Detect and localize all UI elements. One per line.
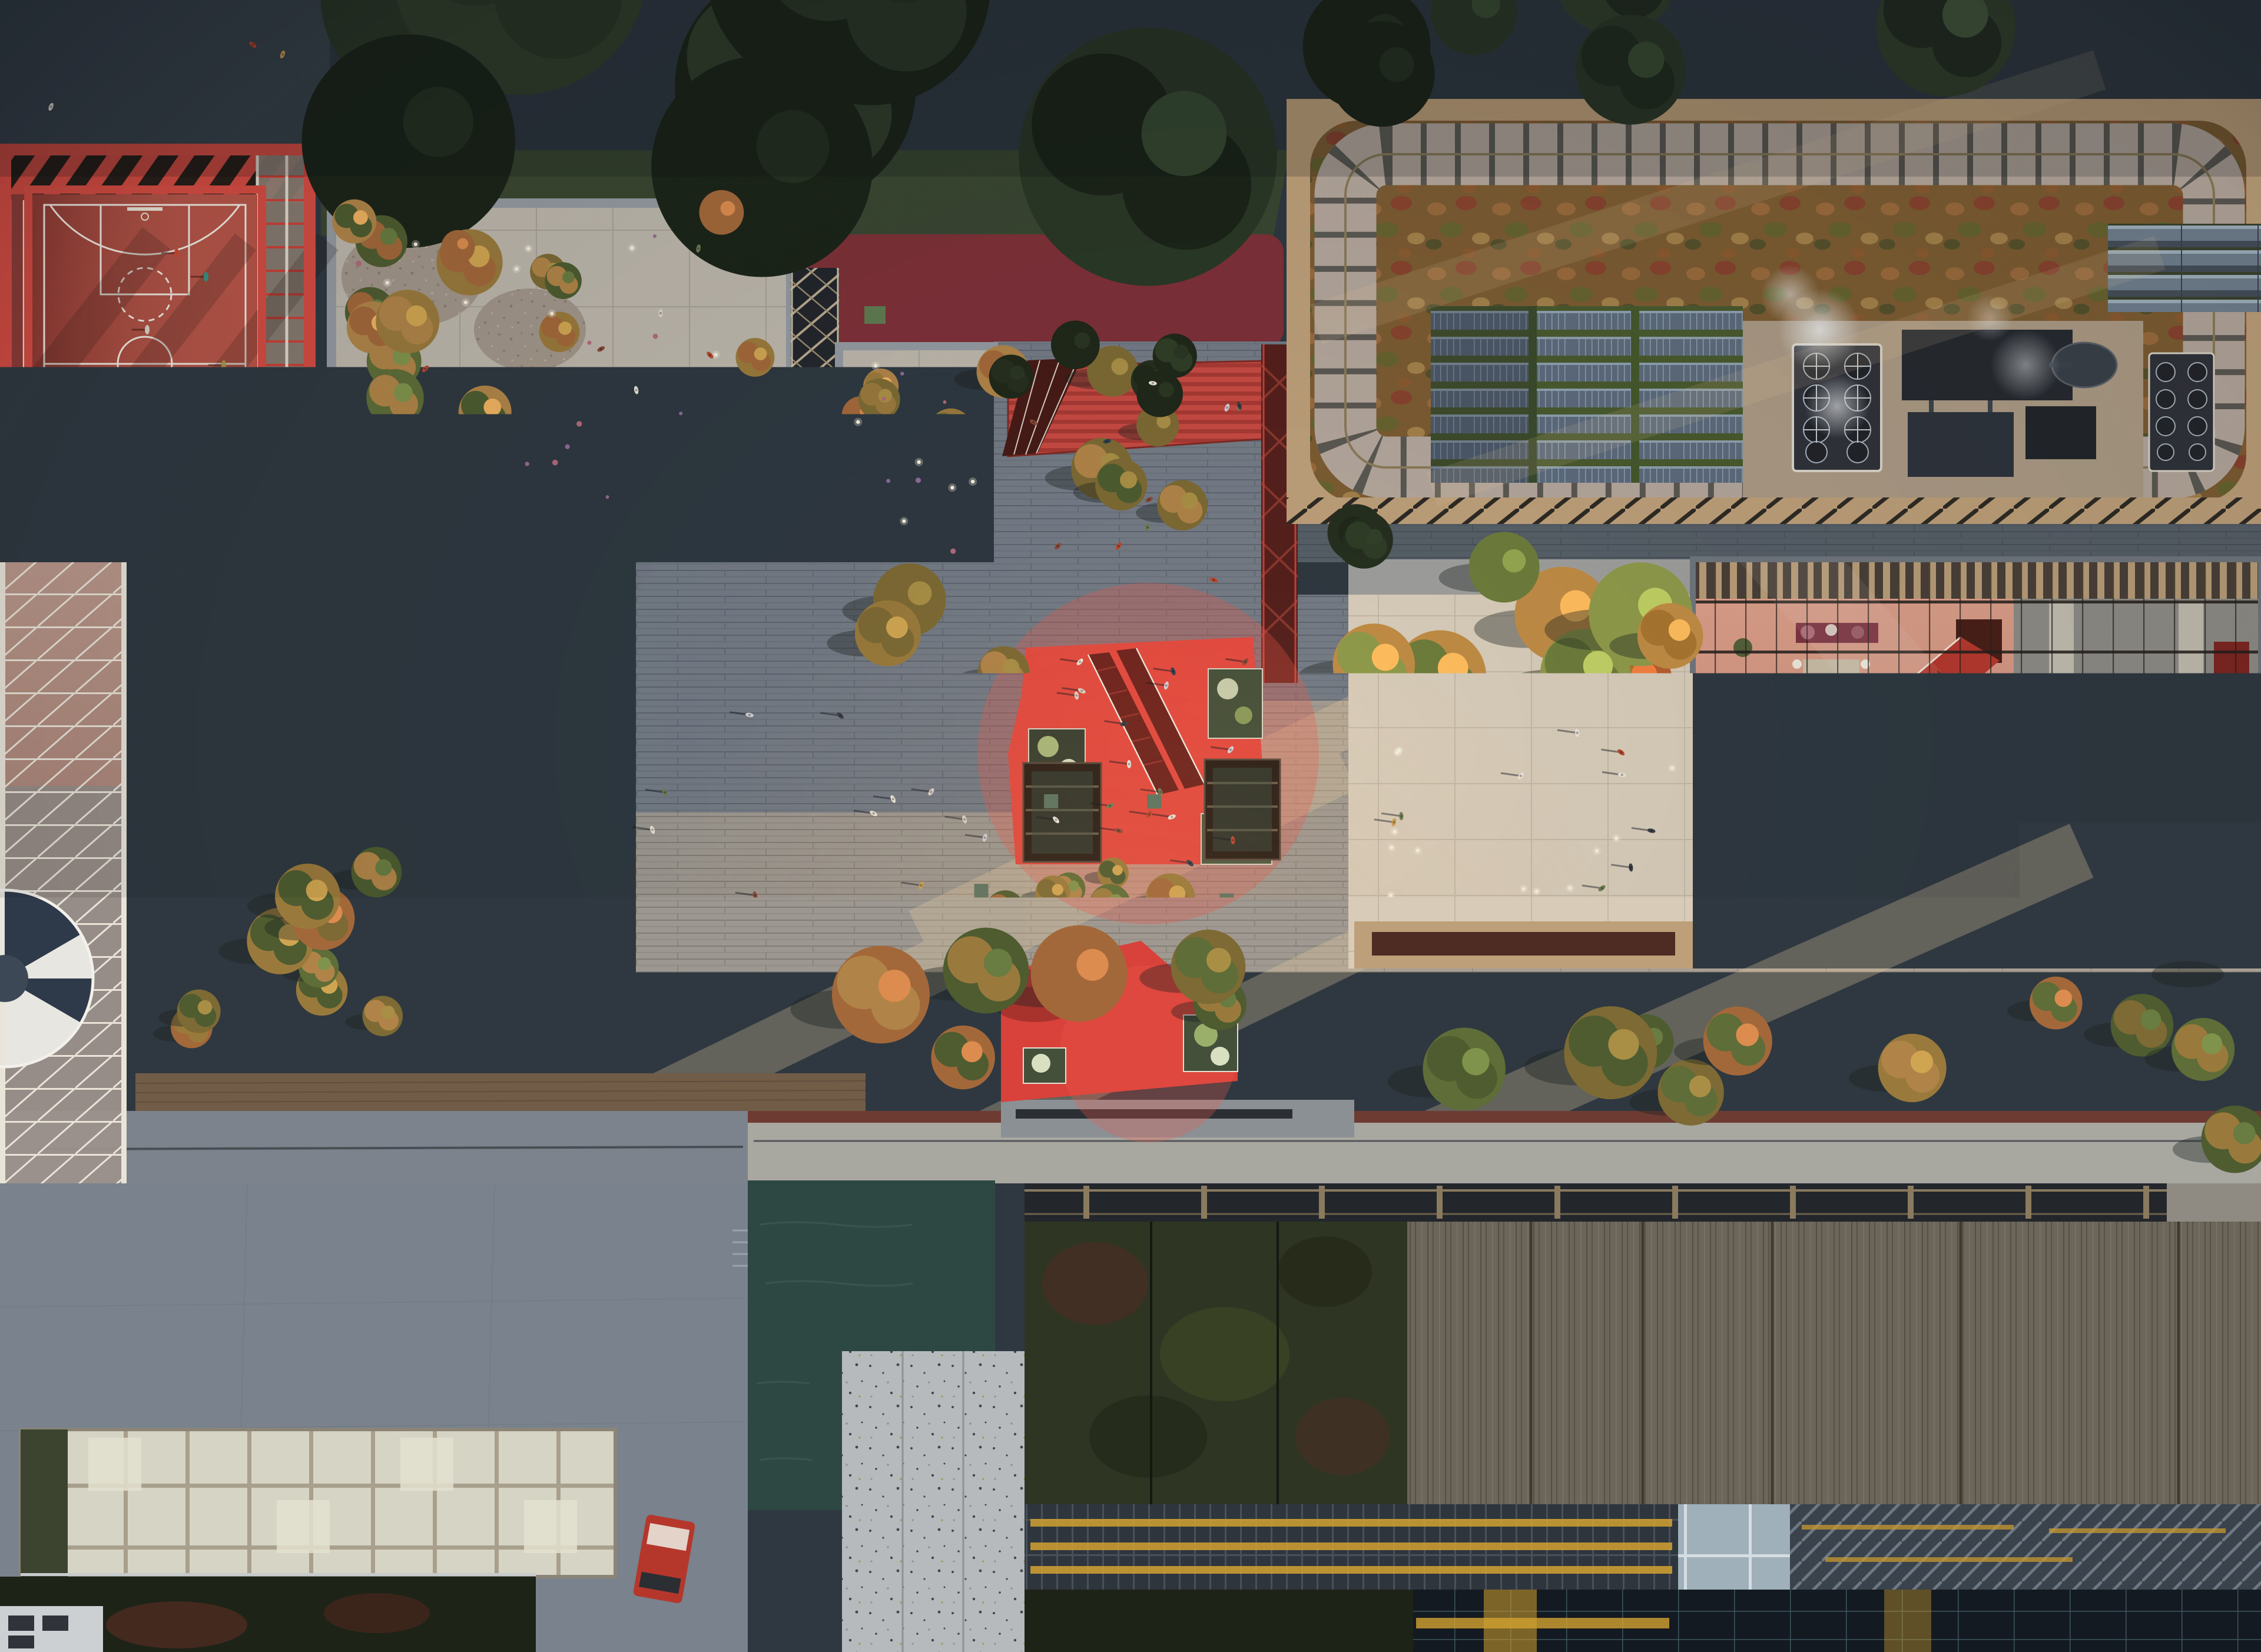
vignette [0, 0, 2261, 1652]
render-canvas [0, 0, 2261, 1652]
aerial-architectural-render [0, 0, 2261, 1652]
